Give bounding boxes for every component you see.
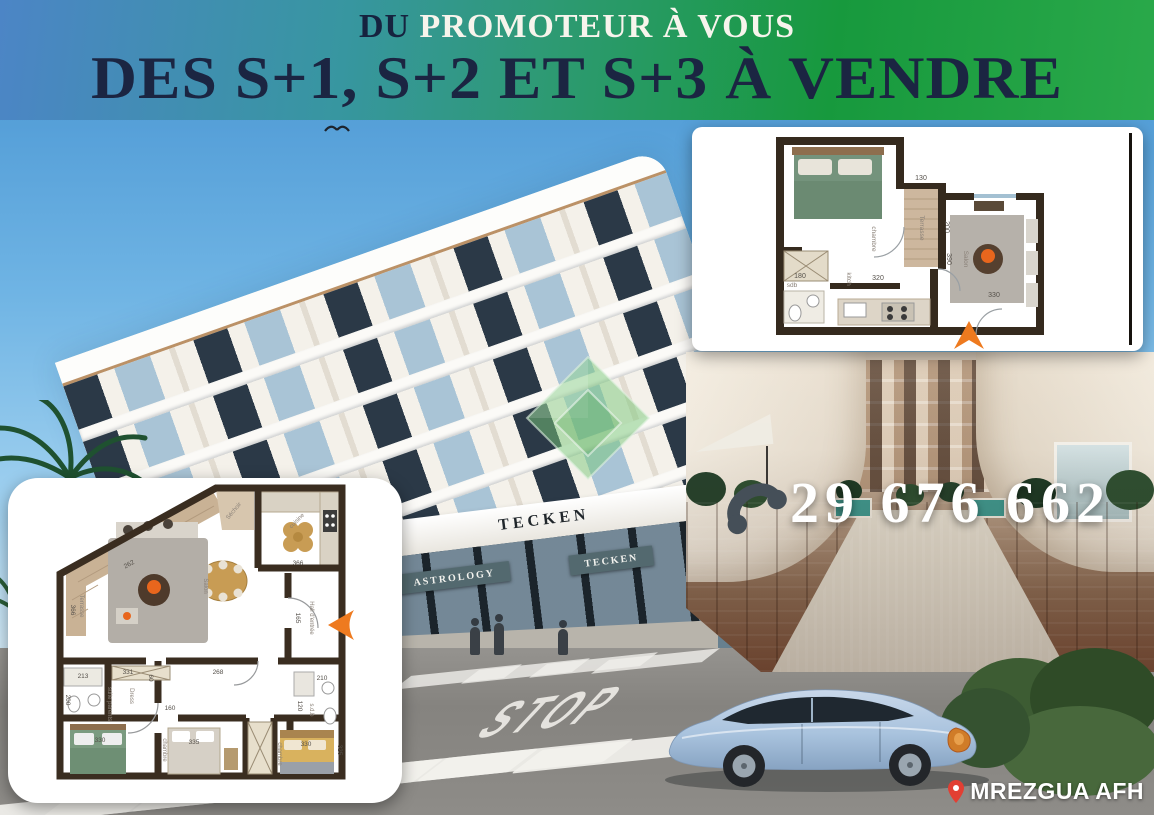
plan-large-kitchen: [260, 492, 340, 568]
dim-label: 366: [69, 605, 76, 616]
dim-label: 325: [336, 745, 343, 756]
room-label: Salon: [202, 578, 208, 593]
bird-icon: [324, 122, 350, 134]
dim-label: 160: [165, 705, 176, 712]
dim-label: 60: [147, 674, 154, 682]
fascia-sign-label: TECKEN: [497, 506, 590, 535]
phone-handset-icon: [697, 448, 804, 555]
dim-label: 210: [317, 675, 328, 682]
dim-label: 120: [296, 701, 303, 712]
location-watermark-label: MREZGUA AFH: [970, 778, 1144, 805]
room-label: Terrasse: [918, 216, 925, 241]
map-pin-icon: [948, 780, 964, 803]
dim-label: 330: [988, 292, 1000, 299]
room-label: sdb: [787, 282, 798, 289]
car-hub-front: [741, 763, 747, 769]
car-shadow: [665, 768, 989, 792]
room-label: chambre: [276, 742, 282, 766]
dim-label: 335: [189, 739, 200, 746]
dim-label: 180: [794, 273, 806, 280]
floor-plan-small-card: 130 200 320 180 330 390 chambre Terrasse…: [692, 127, 1143, 351]
plan-small-bedroom: [792, 147, 884, 219]
dim-label: 330: [95, 737, 106, 744]
pedestrian-head: [495, 614, 503, 622]
header-subtitle-rest: PROMOTEUR À VOUS: [410, 8, 795, 45]
dim-label: 330: [301, 741, 312, 748]
header-subtitle-prefix: DU: [359, 8, 410, 45]
header-title: DES S+1, S+2 ET S+3 À VENDRE: [0, 44, 1154, 113]
plan-small-kitchen: [838, 299, 930, 325]
dim-label: 366: [293, 560, 304, 567]
floor-plan-small: 130 200 320 180 330 390 chambre Terrasse…: [692, 127, 1143, 351]
car-tail-light-inner: [954, 733, 964, 745]
room-label: kitch: [845, 272, 852, 286]
plan-small-closet: [784, 251, 828, 281]
dim-label: 331: [123, 669, 134, 676]
plan-edge-line: [1129, 133, 1132, 345]
car-hub-rear: [907, 762, 913, 768]
pedestrian-head: [559, 620, 567, 628]
pedestrian-head: [471, 618, 479, 626]
dim-label: 165: [294, 613, 301, 624]
location-watermark: MREZGUA AFH: [948, 778, 1144, 805]
dim-label: 200: [943, 221, 950, 233]
contact-row: 29 676 662: [712, 452, 1142, 552]
dim-label: 390: [945, 253, 952, 265]
dim-label: 320: [872, 275, 884, 282]
pedestrian: [558, 620, 568, 655]
plan-large-bed-mid: [168, 728, 238, 774]
real-estate-poster: TECKEN ASTROLOGY TECKEN STOP: [0, 0, 1154, 815]
pedestrian-body: [494, 623, 504, 655]
plan-small-bathroom: [784, 291, 824, 323]
room-label: s.d.b: [308, 703, 314, 717]
floor-plan-large: 262 366 213 200 331 60 268 165 210 120 3…: [8, 478, 402, 803]
floor-plan-large-card: 262 366 213 200 331 60 268 165 210 120 3…: [8, 478, 402, 803]
pedestrian: [470, 618, 480, 655]
pedestrian: [494, 614, 504, 655]
room-label: chambre: [870, 226, 877, 252]
room-label: suite parents: [106, 687, 112, 721]
shop-sign-label: TECKEN: [584, 552, 639, 570]
dim-label: 213: [78, 673, 89, 680]
plan-large-bed-right: [280, 730, 334, 774]
room-label: Hall d'entrée: [308, 601, 314, 635]
room-label: chambre: [161, 738, 167, 762]
pedestrian-body: [470, 627, 480, 655]
diamond-logo: [522, 352, 654, 484]
room-label: Dress: [128, 688, 134, 704]
room-label: Salon: [962, 251, 969, 268]
dim-label: 130: [915, 175, 927, 182]
header-banner: DU PROMOTEUR À VOUS DES S+1, S+2 ET S+3 …: [0, 0, 1154, 120]
dim-label: 200: [64, 695, 71, 706]
car: [652, 666, 992, 796]
header-subtitle: DU PROMOTEUR À VOUS: [0, 8, 1154, 46]
room-label: Terrasse: [78, 594, 84, 618]
plan-large-bed-left: [70, 724, 126, 774]
dim-label: 268: [213, 669, 224, 676]
phone-number: 29 676 662: [790, 469, 1111, 536]
pedestrian-body: [558, 629, 568, 655]
